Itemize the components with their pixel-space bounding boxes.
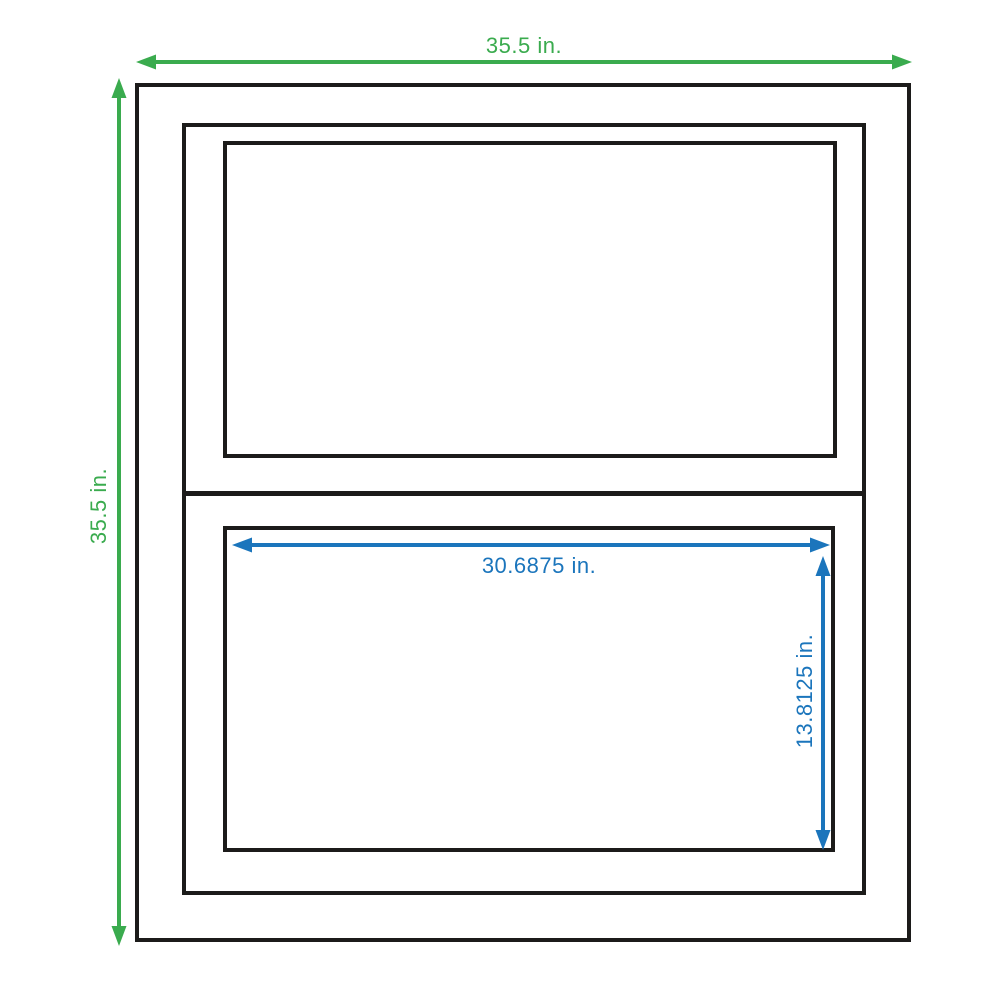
frame-width-arrowhead-right-icon	[892, 55, 912, 70]
top-sash-glass	[223, 141, 837, 458]
frame-height-arrowhead-top-icon	[112, 78, 127, 98]
glass-height-label: 13.8125 in.	[792, 634, 818, 748]
frame-height-dimension	[112, 78, 127, 946]
window-dimension-diagram: 35.5 in. 35.5 in. 30.6875 in. 13.8125 in…	[0, 0, 1000, 1000]
frame-width-label: 35.5 in.	[486, 33, 562, 59]
meeting-rail	[182, 491, 866, 496]
frame-height-label: 35.5 in.	[86, 468, 112, 544]
frame-height-arrowhead-bottom-icon	[112, 926, 127, 946]
glass-width-label: 30.6875 in.	[482, 553, 596, 579]
frame-width-arrowhead-left-icon	[136, 55, 156, 70]
